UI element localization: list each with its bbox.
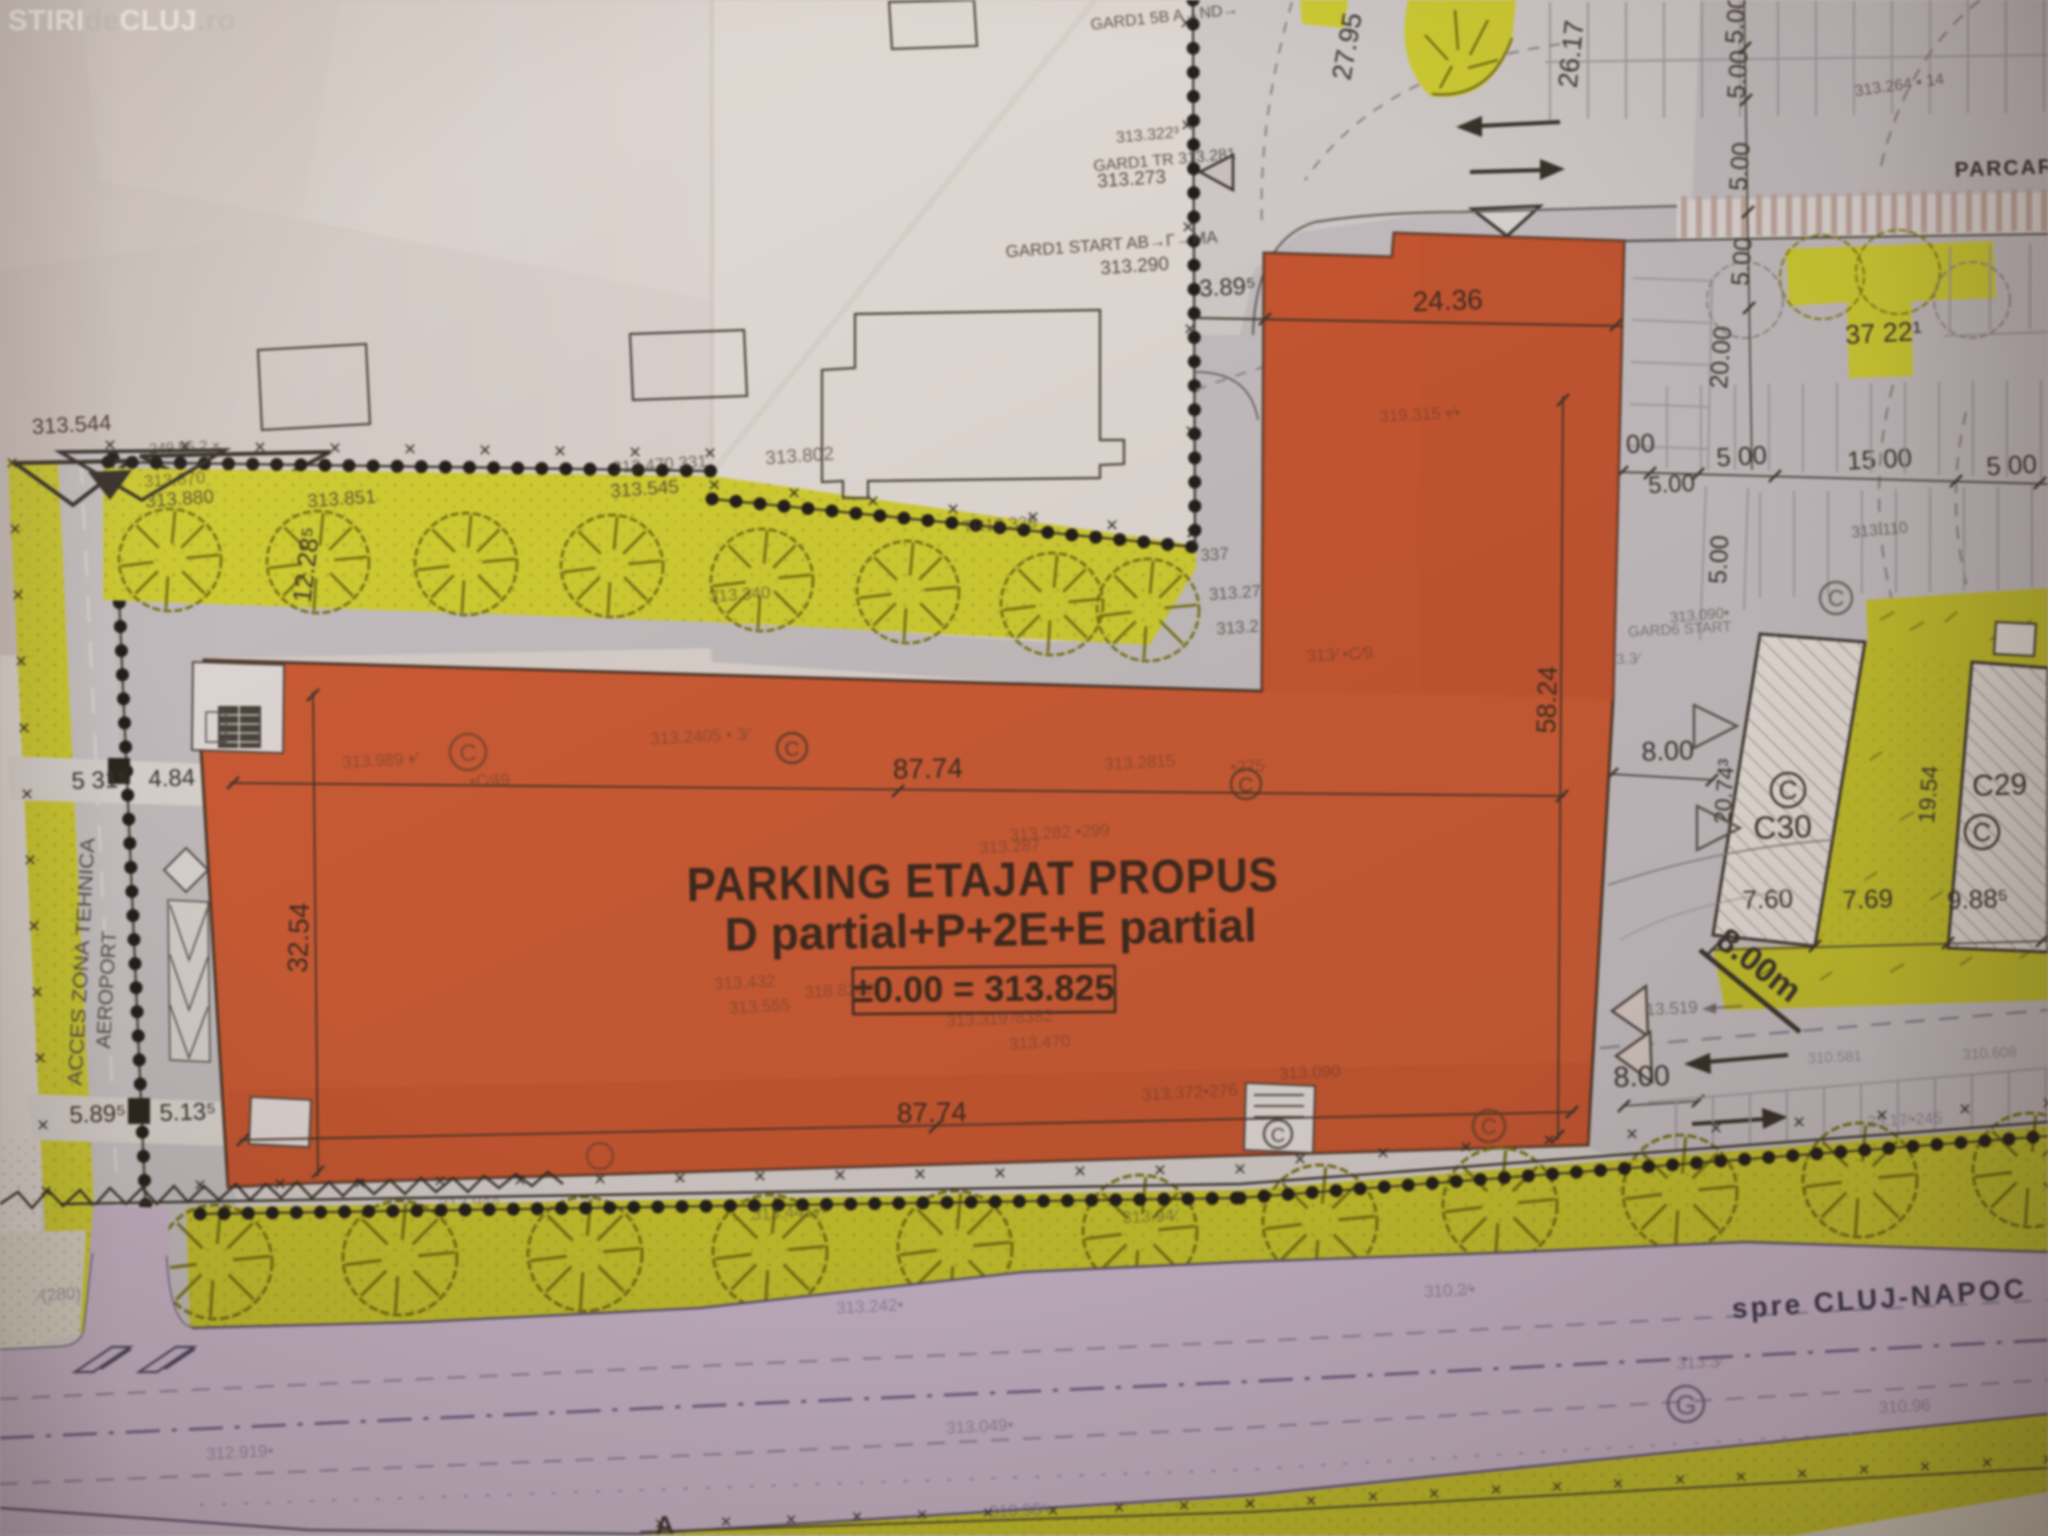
svg-text:C29: C29 [1972,768,2028,803]
svg-text:310.581: 310.581 [1807,1048,1862,1068]
svg-text:313.287: 313.287 [979,835,1041,857]
svg-text:19.54: 19.54 [1913,765,1943,824]
svg-text:C30: C30 [1753,808,1813,846]
svg-text:×: × [1294,1148,1306,1171]
svg-text:310.96⁄•: 310.96⁄• [989,1499,1051,1521]
svg-text:87.74: 87.74 [897,1096,968,1128]
svg-text:×: × [1184,318,1196,341]
svg-text:×: × [1106,514,1118,537]
svg-text:G: G [1675,1390,1696,1420]
svg-text:7.69: 7.69 [1842,883,1894,915]
svg-text:C: C [459,740,476,767]
svg-text:310.2⁄•: 310.2⁄• [1424,1280,1476,1302]
svg-text:×: × [434,1170,446,1193]
svg-text:7.60: 7.60 [1742,883,1794,915]
svg-text:5.00: 5.00 [1704,535,1735,585]
svg-text:×: × [514,1169,526,1192]
svg-text:32.54: 32.54 [282,902,315,973]
svg-text:×: × [1074,1160,1086,1183]
svg-text:×: × [194,1174,206,1197]
svg-text:310.96: 310.96 [1878,1396,1931,1418]
svg-text:•C⁄49: •C⁄49 [469,770,510,791]
svg-text:STIRIdeCLUJ.ro: STIRIdeCLUJ.ro [8,5,236,37]
svg-text:313.3⁄: 313.3⁄ [1677,1352,1726,1374]
svg-text:3.89⁵: 3.89⁵ [1199,273,1257,303]
svg-text:×: × [1959,1098,1971,1121]
svg-text:•275: •275 [1230,756,1265,777]
svg-text:C: C [1481,1114,1497,1139]
svg-text:9.88⁵: 9.88⁵ [1946,883,2008,915]
svg-text:×: × [1377,1142,1389,1165]
svg-text:C: C [784,738,799,761]
svg-text:×: × [15,650,27,673]
svg-text:×: × [1543,1129,1555,1152]
svg-text:15 00: 15 00 [1846,442,1913,475]
svg-text:D partial+P+2E+E partial: D partial+P+2E+E partial [724,898,1257,960]
svg-text:×: × [329,437,341,460]
svg-text:C: C [1973,817,1992,847]
svg-text:×: × [18,717,30,740]
svg-text:310.608: 310.608 [1962,1044,2017,1064]
svg-text:×: × [274,1173,286,1196]
svg-text:313.94⁄: 313.94⁄ [1122,1205,1181,1227]
svg-text:×: × [179,435,191,458]
svg-text:×: × [994,1162,1006,1185]
svg-text:⁄(280): ⁄(280) [34,1284,81,1305]
svg-text:13.519: 13.519 [1645,998,1698,1020]
svg-text:PARCAR: PARCAR [1954,155,2048,181]
svg-text:313.432: 313.432 [714,971,776,993]
svg-text:×: × [28,915,40,938]
svg-text:×: × [1181,114,1193,137]
svg-text:58.24: 58.24 [1531,665,1563,734]
svg-text:×: × [37,1114,49,1137]
svg-text:87.74: 87.74 [893,752,964,784]
svg-text:×: × [254,436,266,459]
svg-text:313.2815: 313.2815 [1104,751,1176,774]
svg-text:×: × [1154,1159,1166,1182]
svg-text:×: × [1876,1104,1888,1127]
svg-text:5.13⁵: 5.13⁵ [159,1098,217,1127]
svg-text:×: × [1710,1117,1722,1140]
svg-text:313.049•: 313.049• [946,1415,1014,1438]
svg-text:8.00: 8.00 [1641,735,1695,767]
svg-text:5.00: 5.00 [1720,0,1751,45]
svg-text:×: × [834,1164,846,1187]
svg-text:×: × [1626,1123,1638,1146]
svg-text:313.470: 313.470 [1009,1031,1071,1053]
svg-text:37 22¹: 37 22¹ [1845,316,1923,350]
svg-text:×: × [1460,1136,1472,1159]
svg-text:5.00: 5.00 [1722,49,1753,100]
svg-text:A: A [655,1510,675,1536]
svg-text:×: × [1185,420,1197,443]
svg-text:×: × [31,981,43,1004]
svg-text:318.8202: 318.8202 [804,979,876,1002]
svg-text:×: × [594,1168,606,1191]
svg-text:313⁄ •С⁄9: 313⁄ •С⁄9 [1306,643,1373,665]
svg-text:5 31⁵: 5 31⁵ [71,766,129,795]
svg-text:20.00: 20.00 [1705,325,1737,389]
svg-text:×: × [554,440,566,463]
svg-text:313.441•⁄•: 313.441•⁄• [751,1201,828,1224]
svg-text:×: × [24,849,36,872]
svg-text:5.00: 5.00 [1724,141,1755,192]
svg-text:×: × [354,1172,366,1195]
svg-text:C: C [1238,774,1253,797]
svg-text:×: × [754,1165,766,1188]
svg-text:313.242•: 313.242• [836,1295,904,1318]
svg-text:×: × [674,1167,686,1190]
svg-text:×: × [914,1163,926,1186]
svg-text:±0.00 = 313.825: ±0.00 = 313.825 [853,967,1114,1010]
svg-text:4.84: 4.84 [148,764,196,793]
svg-text:337: 337 [1200,544,1230,565]
svg-text:×: × [788,482,800,505]
svg-text:×: × [1793,1111,1805,1134]
svg-text:×: × [2042,1092,2048,1115]
svg-text:×: × [1186,522,1198,545]
svg-text:5 00: 5 00 [1715,440,1767,473]
svg-text:×: × [12,584,24,607]
svg-text:C: C [1828,585,1845,611]
svg-text:313.544: 313.544 [31,410,112,439]
svg-text:C: C [1779,775,1798,805]
svg-text:×: × [104,434,116,457]
svg-text:313.2: 313.2 [1216,617,1260,639]
svg-text:5.00: 5.00 [1648,470,1696,499]
svg-text:×: × [34,1047,46,1070]
svg-text:24.36: 24.36 [1412,284,1483,317]
svg-text:×: × [21,783,33,806]
svg-text:×: × [404,438,416,461]
svg-text:5.00: 5.00 [1726,236,1757,287]
svg-text:×: × [1234,1158,1246,1181]
svg-text:×: × [479,439,491,462]
svg-text:5 00: 5 00 [1985,449,2037,482]
svg-text:8.00: 8.00 [1613,1060,1671,1094]
svg-text:312.919•: 312.919• [206,1441,274,1464]
svg-text:C: C [1271,1125,1285,1147]
svg-text:×: × [9,518,21,541]
svg-text:313.090: 313.090 [1279,1061,1341,1083]
svg-text:5.89⁵: 5.89⁵ [69,1100,127,1129]
svg-text:313.555: 313.555 [729,995,791,1017]
